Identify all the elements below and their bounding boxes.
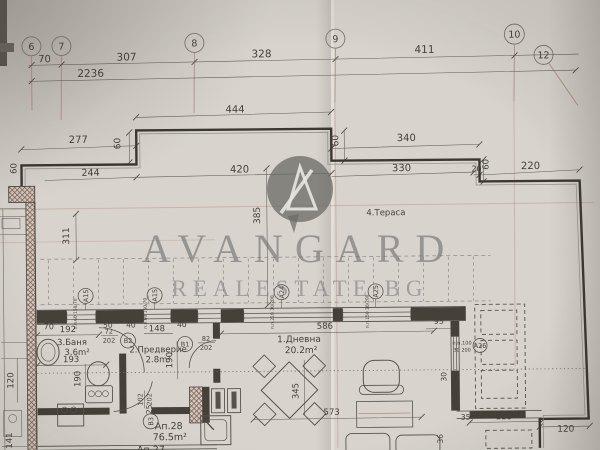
photo-vignette [0,0,600,450]
floor-plan-photo: 6 7 8 9 10 12 [0,0,600,450]
floor-plan-canvas: 6 7 8 9 10 12 [0,0,600,450]
